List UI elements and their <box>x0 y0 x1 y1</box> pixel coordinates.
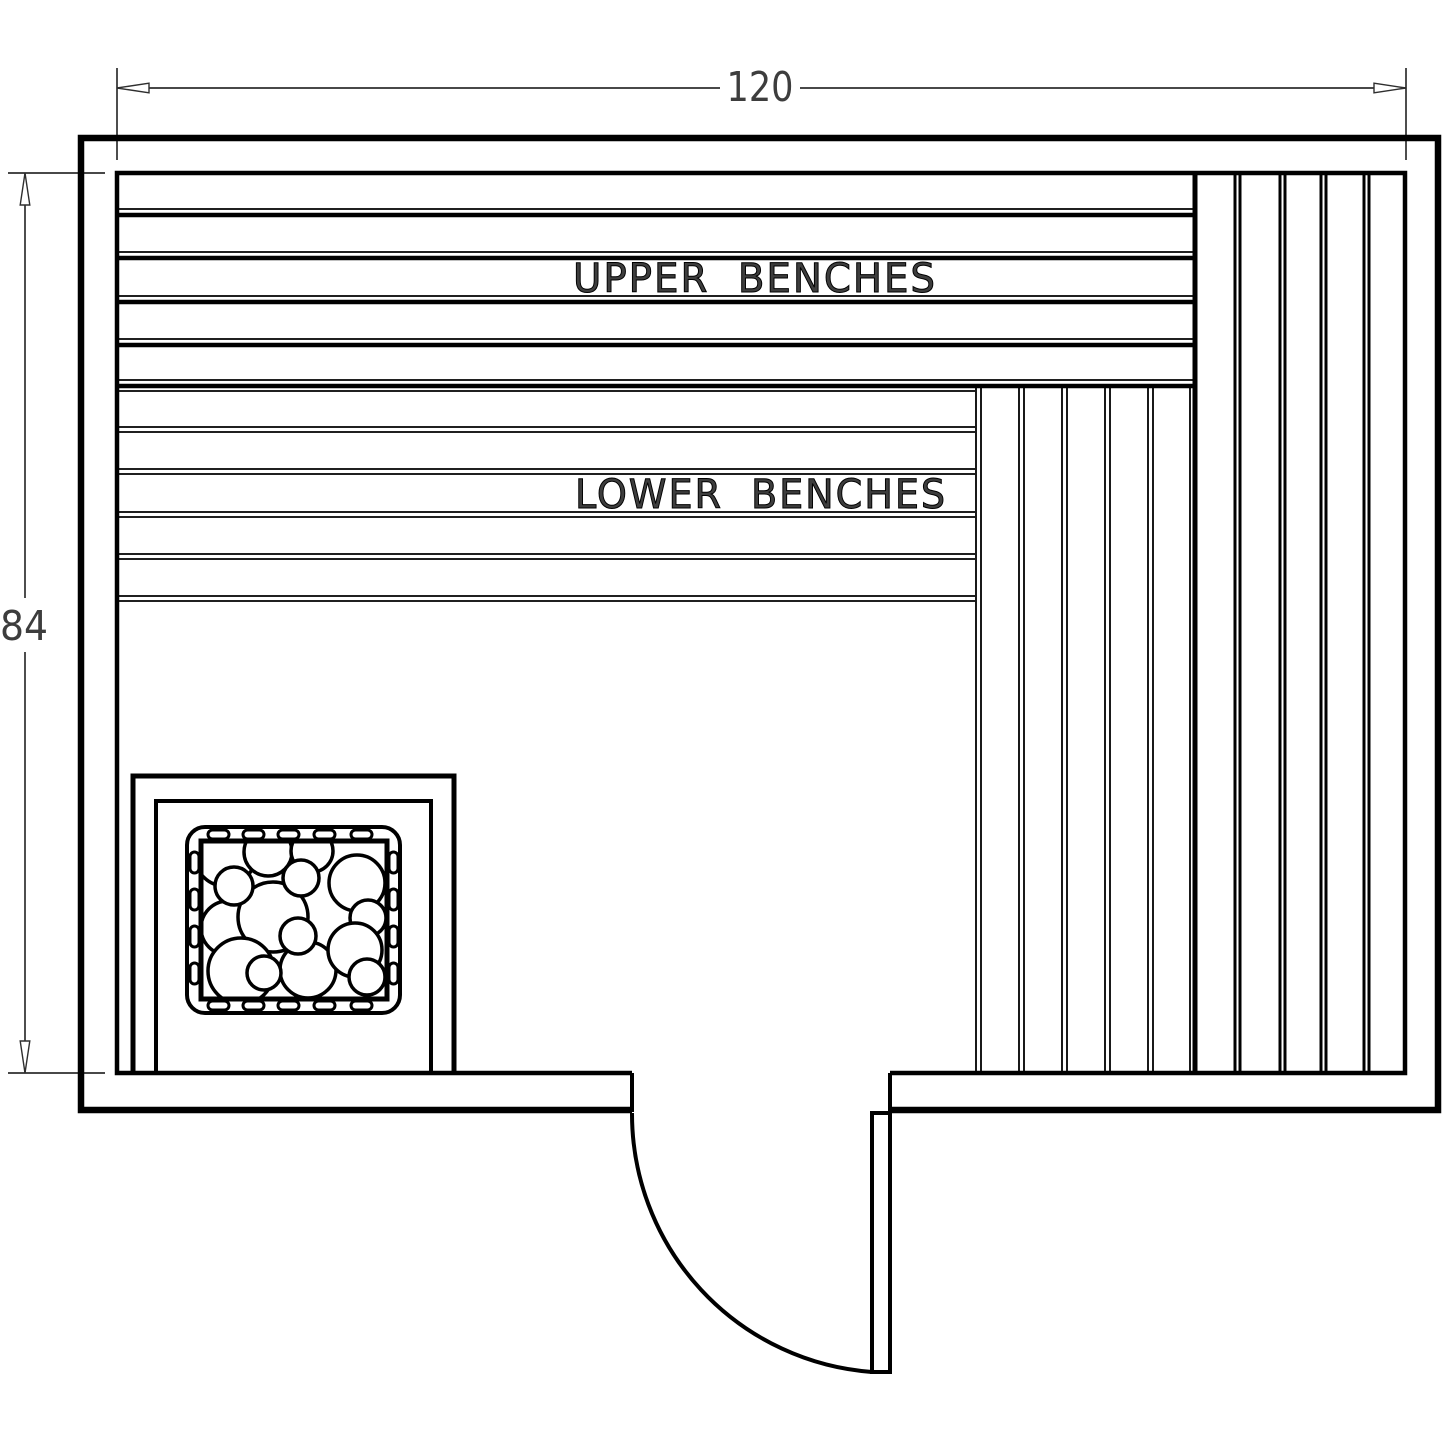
middle-slat-lines-a <box>976 388 1190 1073</box>
heater-rocks <box>195 826 386 1004</box>
dimension-width: 120 <box>117 63 1406 160</box>
upper-benches: UPPER BENCHES <box>117 209 1195 386</box>
right-slat-lines-b <box>1240 175 1369 1073</box>
sauna-floor-plan: 120 84 UPPER BENCHES LOWER BENCHES <box>0 0 1445 1445</box>
heater <box>133 776 454 1073</box>
door-leaf <box>872 1113 890 1372</box>
dim-arrow-right <box>1374 83 1406 93</box>
middle-slat-lines-b <box>981 388 1153 1073</box>
dim-arrow-top <box>20 173 30 205</box>
dimension-height: 84 <box>0 173 105 1073</box>
lower-benches: LOWER BENCHES <box>117 391 975 601</box>
dim-width-value: 120 <box>727 63 794 111</box>
dim-arrow-left <box>117 83 149 93</box>
upper-benches-label: UPPER BENCHES <box>573 256 937 302</box>
door-swing-arc <box>632 1113 872 1372</box>
lower-benches-label: LOWER BENCHES <box>575 472 947 518</box>
drawing-canvas: 120 84 UPPER BENCHES LOWER BENCHES <box>0 0 1445 1445</box>
bench-platform-middle-vertical-slats <box>976 388 1190 1073</box>
bench-platform-right-vertical-slats <box>1195 173 1369 1073</box>
dim-arrow-bottom <box>20 1041 30 1073</box>
dim-height-value: 84 <box>0 602 48 650</box>
door <box>632 1113 890 1372</box>
right-slat-lines-a <box>1235 175 1364 1073</box>
